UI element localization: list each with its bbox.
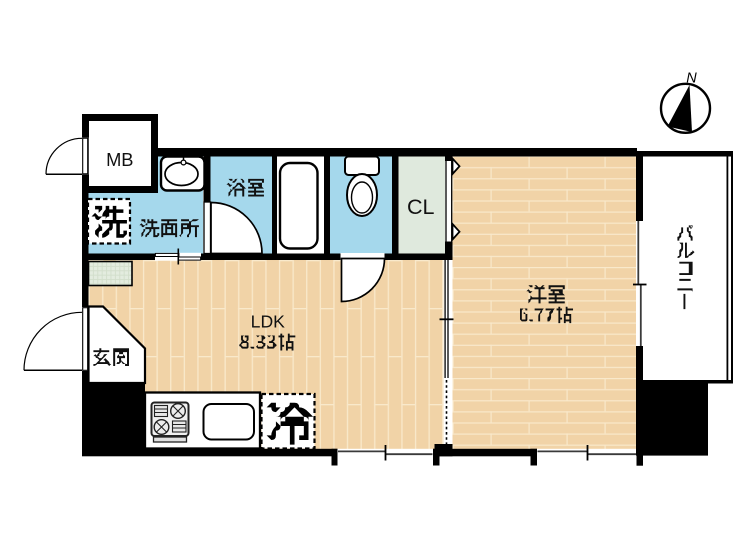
svg-text:MB: MB bbox=[106, 149, 133, 170]
svg-text:LDK: LDK bbox=[251, 312, 285, 332]
svg-text:N: N bbox=[686, 70, 697, 86]
svg-text:CL: CL bbox=[407, 195, 435, 219]
